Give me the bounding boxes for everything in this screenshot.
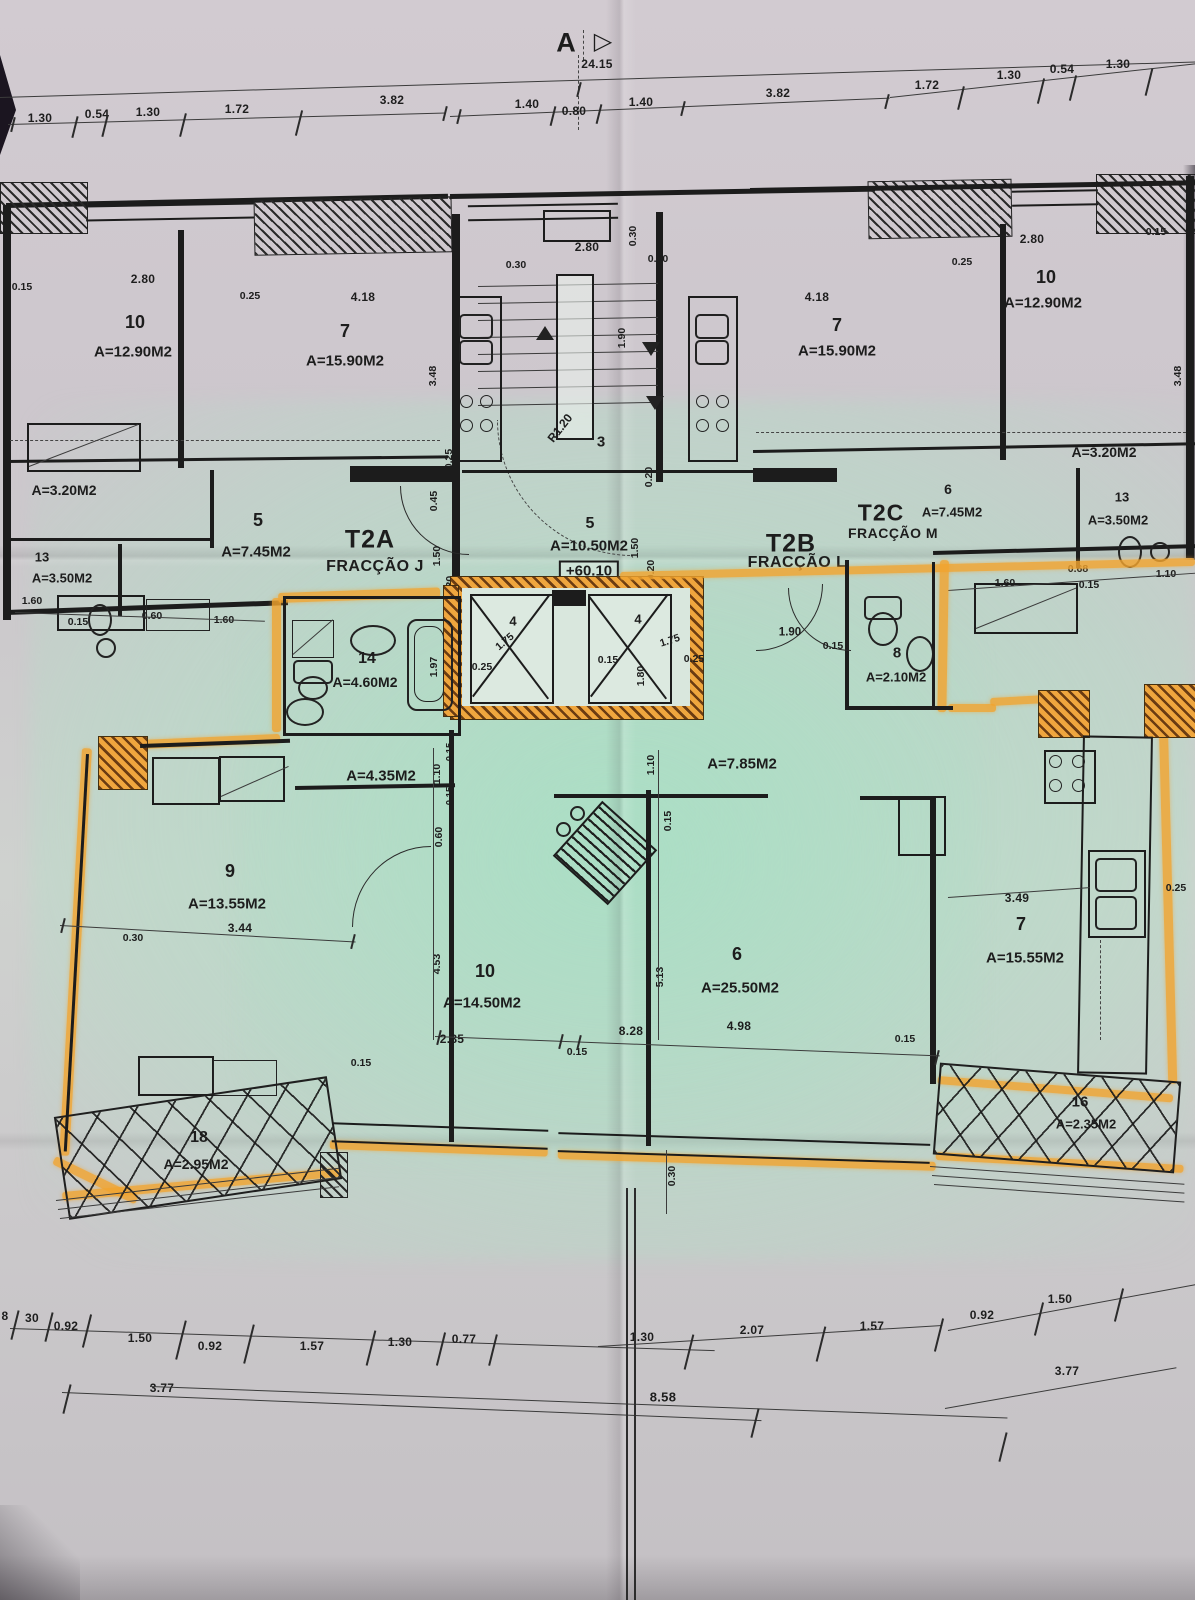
washbasin: [906, 636, 934, 672]
dimension-label: 0.77: [452, 1333, 477, 1345]
column-box: [898, 796, 946, 856]
dimension-label: 0.15: [823, 641, 843, 652]
dimension-label: 3.48: [1173, 366, 1184, 386]
lift-number: 4: [509, 615, 516, 628]
dimension-label: 0.15: [663, 811, 674, 831]
room-number-label: 7: [1016, 915, 1026, 933]
overall-dimension: 24.15: [581, 58, 613, 70]
dim-tick: [550, 106, 556, 126]
sink-bowl: [1095, 896, 1137, 930]
dimension-label: 1.30: [136, 106, 161, 118]
dimension-label: 1.50: [1048, 1293, 1073, 1305]
stove-burners: [693, 392, 735, 442]
dimension-label: 1.72: [225, 103, 250, 115]
dimension-label: 0.30: [506, 260, 526, 271]
wardrobe: [152, 757, 220, 805]
dim-line-vertical: [666, 1150, 667, 1214]
dimension-label: 0.15: [1146, 227, 1166, 238]
dim-tick: [884, 94, 889, 109]
dim-tick: [71, 116, 78, 138]
room-area-label: A=3.50M2: [32, 572, 92, 585]
room-area-label: A=2.10M2: [866, 671, 926, 684]
burner-icon: [460, 419, 473, 432]
edge-shadow-topleft: [0, 55, 16, 155]
window-band: [1012, 189, 1098, 206]
balcony18-crosshatch: [54, 1076, 342, 1220]
section-marker-arrow-icon: ▷: [594, 30, 612, 54]
toilet: [88, 604, 112, 636]
dimension-label: 30: [25, 1312, 39, 1324]
dimension-label: 2.07: [740, 1324, 765, 1336]
room-area-label: A=15.90M2: [306, 354, 384, 369]
dimension-label: 0.15: [598, 655, 618, 666]
dimension-label: 1.60: [22, 596, 42, 607]
exterior-wall-left: [3, 205, 11, 620]
orange-highlight-stroke: [937, 560, 949, 712]
room-number-label: 9: [225, 862, 235, 880]
dimension-label: 0.80: [562, 105, 587, 117]
dim-tick: [10, 1310, 19, 1339]
kitchen-sink: [695, 314, 729, 339]
section-marker-letter: A: [556, 30, 576, 57]
dim-tick: [1114, 1288, 1124, 1321]
dimension-label: 0.60: [434, 827, 445, 847]
dimension-label: 1.50: [432, 546, 443, 566]
dim-tick: [680, 101, 685, 116]
hatched-corner: [1144, 684, 1195, 738]
dimension-label: 0.92: [54, 1320, 79, 1332]
lift-shaft-right: [588, 594, 672, 704]
room-area-label: A=10.50M2: [550, 539, 628, 554]
room-area-label: A=4.60M2: [333, 675, 398, 689]
door-arc: [352, 846, 431, 927]
dim-tick: [179, 113, 186, 137]
dimension-label: 4.18: [805, 291, 830, 303]
dim-tick: [243, 1324, 254, 1363]
dim-line: [60, 925, 356, 943]
hall-room6-wall: [554, 794, 768, 798]
stove-burners: [1046, 752, 1094, 802]
room-number-label: 13: [35, 551, 49, 564]
balcony-rail: [934, 1184, 1184, 1203]
floor-plan-photo: A ▷ 24.15 1.30 0.54 1.30 1.72 3.82 1.40 …: [0, 0, 1195, 1600]
dim-tick: [366, 1330, 376, 1365]
stove-burners: [457, 392, 499, 442]
dimension-label: 3.82: [766, 87, 791, 99]
dimension-label: 0.15: [351, 1058, 371, 1069]
room-number-label: 10: [475, 962, 495, 980]
edge-shadow-bottomleft: [0, 1505, 80, 1600]
exterior-wall-right: [1186, 176, 1194, 558]
dimension-label: 2.85: [440, 1033, 465, 1045]
utility-dashed-line: [756, 432, 1186, 433]
dimension-label: 1.30: [997, 69, 1022, 81]
room-number-label: 3: [597, 435, 605, 450]
room-number-label: 6: [944, 482, 952, 496]
dimension-label: 0.15: [12, 282, 32, 293]
dimension-label: 3.44: [228, 922, 253, 934]
dimension-label: 0.92: [198, 1340, 223, 1352]
balcony-area-label: A=2.95M2: [164, 1157, 229, 1171]
dimension-label: 1.10: [646, 755, 657, 775]
sink: [96, 638, 116, 658]
hatched-corner: [1038, 690, 1090, 738]
dimension-label: 0.15: [445, 743, 455, 762]
sink-bowl: [1095, 858, 1137, 892]
dimension-label: 4.98: [727, 1020, 752, 1032]
dim-line: [435, 1036, 940, 1057]
dim-line-bottom-left: [10, 1328, 715, 1352]
toilet-bowl: [298, 676, 328, 700]
hall-area-label: A=4.35M2: [346, 769, 416, 784]
landing-wall: [462, 470, 658, 473]
dimension-label: 1.80: [636, 666, 647, 686]
orange-highlight-stroke: [272, 598, 281, 732]
dim-tick: [44, 1312, 53, 1341]
fraction-name-t2c: FRACÇÃO M: [848, 526, 938, 540]
dim-tick: [596, 104, 602, 124]
dimension-label: 1.57: [300, 1340, 325, 1352]
dim-tick: [1145, 68, 1153, 96]
dimension-label: 8: [2, 1310, 9, 1322]
stair-direction-arrow-up: [536, 326, 554, 340]
stair-direction-arrow-down: [642, 342, 660, 356]
entry-wall: [753, 468, 837, 482]
room-number-label: 5: [586, 516, 595, 532]
bidet: [286, 698, 324, 726]
room-area-label: A=15.55M2: [986, 951, 1064, 966]
burner-icon: [716, 419, 729, 432]
bathtub-inner: [414, 626, 444, 702]
kitchen-sink: [695, 340, 729, 365]
dim-tick: [750, 1408, 759, 1437]
landing-wall: [660, 470, 760, 473]
balcony-number-label: 18: [190, 1130, 208, 1146]
room-number-label: 14: [358, 651, 376, 667]
balcony-rail: [932, 1175, 1184, 1194]
shower-tray: [292, 620, 334, 658]
dimension-label: 8.58: [650, 1391, 677, 1404]
interior-wall: [6, 538, 211, 541]
shaft-cross: [590, 594, 668, 697]
stair-window: [543, 210, 611, 242]
fireplace-circle: [556, 822, 571, 837]
fraction-name-t2a: FRACÇÃO J: [326, 559, 424, 575]
dim-tick: [488, 1334, 497, 1365]
fireplace-hatch: [553, 801, 658, 906]
dimension-label: 0.25: [952, 257, 972, 268]
room-area-label: A=7.45M2: [922, 506, 982, 519]
interior-wall: [1076, 468, 1080, 568]
interior-wall: [210, 470, 214, 548]
dimension-label: 1.30: [1106, 58, 1131, 70]
lift-pillar: [552, 590, 586, 606]
dim-tick: [436, 1332, 446, 1365]
hall-area-label: A=7.85M2: [707, 757, 777, 772]
dim-tick: [934, 1318, 944, 1351]
stair-radius-arc: [497, 420, 633, 556]
dimension-label: 1.30: [388, 1336, 413, 1348]
dimension-label: 3.82: [380, 94, 405, 106]
burner-icon: [716, 395, 729, 408]
room-number-label: 10: [125, 313, 145, 331]
room-number-label: 7: [832, 316, 842, 334]
burner-icon: [1049, 779, 1062, 792]
orange-highlight-stroke: [620, 558, 1195, 580]
dim-tick: [442, 106, 447, 121]
dim-tick: [1069, 75, 1077, 101]
lift-shaft-left: [470, 594, 554, 704]
wardrobe: [219, 756, 285, 802]
section-marker-dash: [583, 30, 584, 60]
dimension-label: 5.13: [655, 967, 666, 987]
dimension-label: 0.30: [123, 933, 143, 944]
hatched-wall: [0, 182, 88, 234]
dimension-label: 2.80: [575, 241, 600, 253]
toilet-bowl: [868, 612, 898, 646]
dimension-label: 0.54: [1050, 63, 1075, 75]
room-area-label: A=12.90M2: [94, 345, 172, 360]
dimension-label: 0.15: [445, 787, 455, 806]
dimension-label: 0.20: [644, 467, 655, 487]
dim-line-vertical: [658, 750, 659, 1040]
balcony-area-label: A=2.35M2: [1056, 1118, 1116, 1131]
dimension-label: 8.28: [619, 1025, 644, 1037]
hatched-wall: [254, 196, 453, 255]
room-number-label: 13: [1115, 491, 1129, 504]
dimension-label: 0.25: [240, 291, 260, 302]
dimension-label: 4.18: [351, 291, 376, 303]
dimension-label: 1.30: [28, 112, 53, 124]
room-area-label: A=3.50M2: [1088, 514, 1148, 527]
room-number-label: 6: [732, 945, 742, 963]
dimension-label: 0.15: [68, 617, 88, 628]
lift-number: 4: [634, 613, 641, 626]
counter-dashed-line: [1100, 940, 1101, 1040]
fraction-code-t2b: T2B: [766, 532, 816, 557]
room-number-label: 7: [340, 322, 350, 340]
wc8-wall: [845, 706, 953, 710]
orange-highlight-stroke: [948, 704, 996, 712]
dimension-label: 1.40: [629, 96, 654, 108]
dimension-label: 0.45: [429, 491, 440, 511]
room-area-label: A=7.45M2: [221, 545, 291, 560]
room-area-label: A=25.50M2: [701, 981, 779, 996]
dimension-label: 0.25: [1166, 883, 1186, 894]
room-area-label: A=13.55M2: [188, 897, 266, 912]
wall-under-highlight: [64, 754, 89, 1152]
dimension-label: 0.30: [628, 226, 639, 246]
dimension-label: 1.90: [779, 627, 801, 639]
storage-area-label: A=3.20M2: [32, 483, 97, 497]
burner-icon: [696, 419, 709, 432]
dimension-label: 0.30: [648, 254, 668, 265]
burner-icon: [480, 419, 493, 432]
wall-under-highlight: [932, 562, 935, 710]
storage-area-label: A=3.20M2: [1072, 445, 1137, 459]
dimension-label: 1.72: [915, 79, 940, 91]
kitchen-sink: [459, 340, 493, 365]
dimension-label: 3.48: [428, 366, 439, 386]
window-band: [86, 203, 254, 222]
dimension-label: 1.50: [630, 538, 641, 558]
burner-icon: [696, 395, 709, 408]
stair-direction-arrow-down: [646, 396, 664, 410]
room-area-label: A=15.90M2: [798, 344, 876, 359]
dimension-label: 0.92: [970, 1309, 995, 1321]
fraction-code-t2a: T2A: [345, 528, 395, 553]
burner-icon: [1072, 755, 1085, 768]
dim-line-vertical: [433, 748, 434, 1040]
burner-icon: [480, 395, 493, 408]
dimension-label: 2.80: [1020, 233, 1045, 245]
dimension-label: 2.80: [131, 273, 156, 285]
dimension-label: 0.25: [684, 654, 704, 665]
kitchen-sink: [459, 314, 493, 339]
section-line-bottom: [634, 1188, 636, 1600]
dim-tick: [175, 1320, 186, 1359]
shaft-cross: [472, 594, 550, 697]
burner-icon: [460, 395, 473, 408]
dimension-label: 1.40: [515, 98, 540, 110]
interior-wall: [1000, 224, 1006, 460]
dim-tick: [62, 1384, 71, 1413]
edge-shadow-bottom: [0, 1555, 1195, 1600]
burner-icon: [1072, 779, 1085, 792]
dimension-label: 0.15: [895, 1034, 915, 1045]
dimension-label: 1.50: [128, 1332, 153, 1344]
dimension-label: 1.90: [617, 328, 628, 348]
dimension-label: 0.30: [667, 1166, 678, 1186]
window-box: [138, 1056, 214, 1096]
dimension-label: 3.77: [1055, 1365, 1080, 1377]
dim-tick: [295, 110, 303, 136]
dim-tick: [1034, 1302, 1044, 1335]
balcony-number-label: 16: [1072, 1095, 1089, 1110]
dimension-label: 0.25: [472, 662, 492, 673]
fraction-code-t2c: T2C: [858, 502, 904, 525]
section-line-bottom: [626, 1188, 628, 1600]
dim-tick: [998, 1432, 1007, 1461]
burner-icon: [1049, 755, 1062, 768]
room-number-label: 10: [1036, 268, 1056, 286]
room-area-label: A=12.90M2: [1004, 296, 1082, 311]
room-number-label: 5: [253, 511, 263, 529]
interior-wall: [178, 230, 184, 468]
fireplace-circle: [570, 806, 585, 821]
room-number-label: 8: [893, 646, 901, 661]
room-area-label: A=14.50M2: [443, 996, 521, 1011]
